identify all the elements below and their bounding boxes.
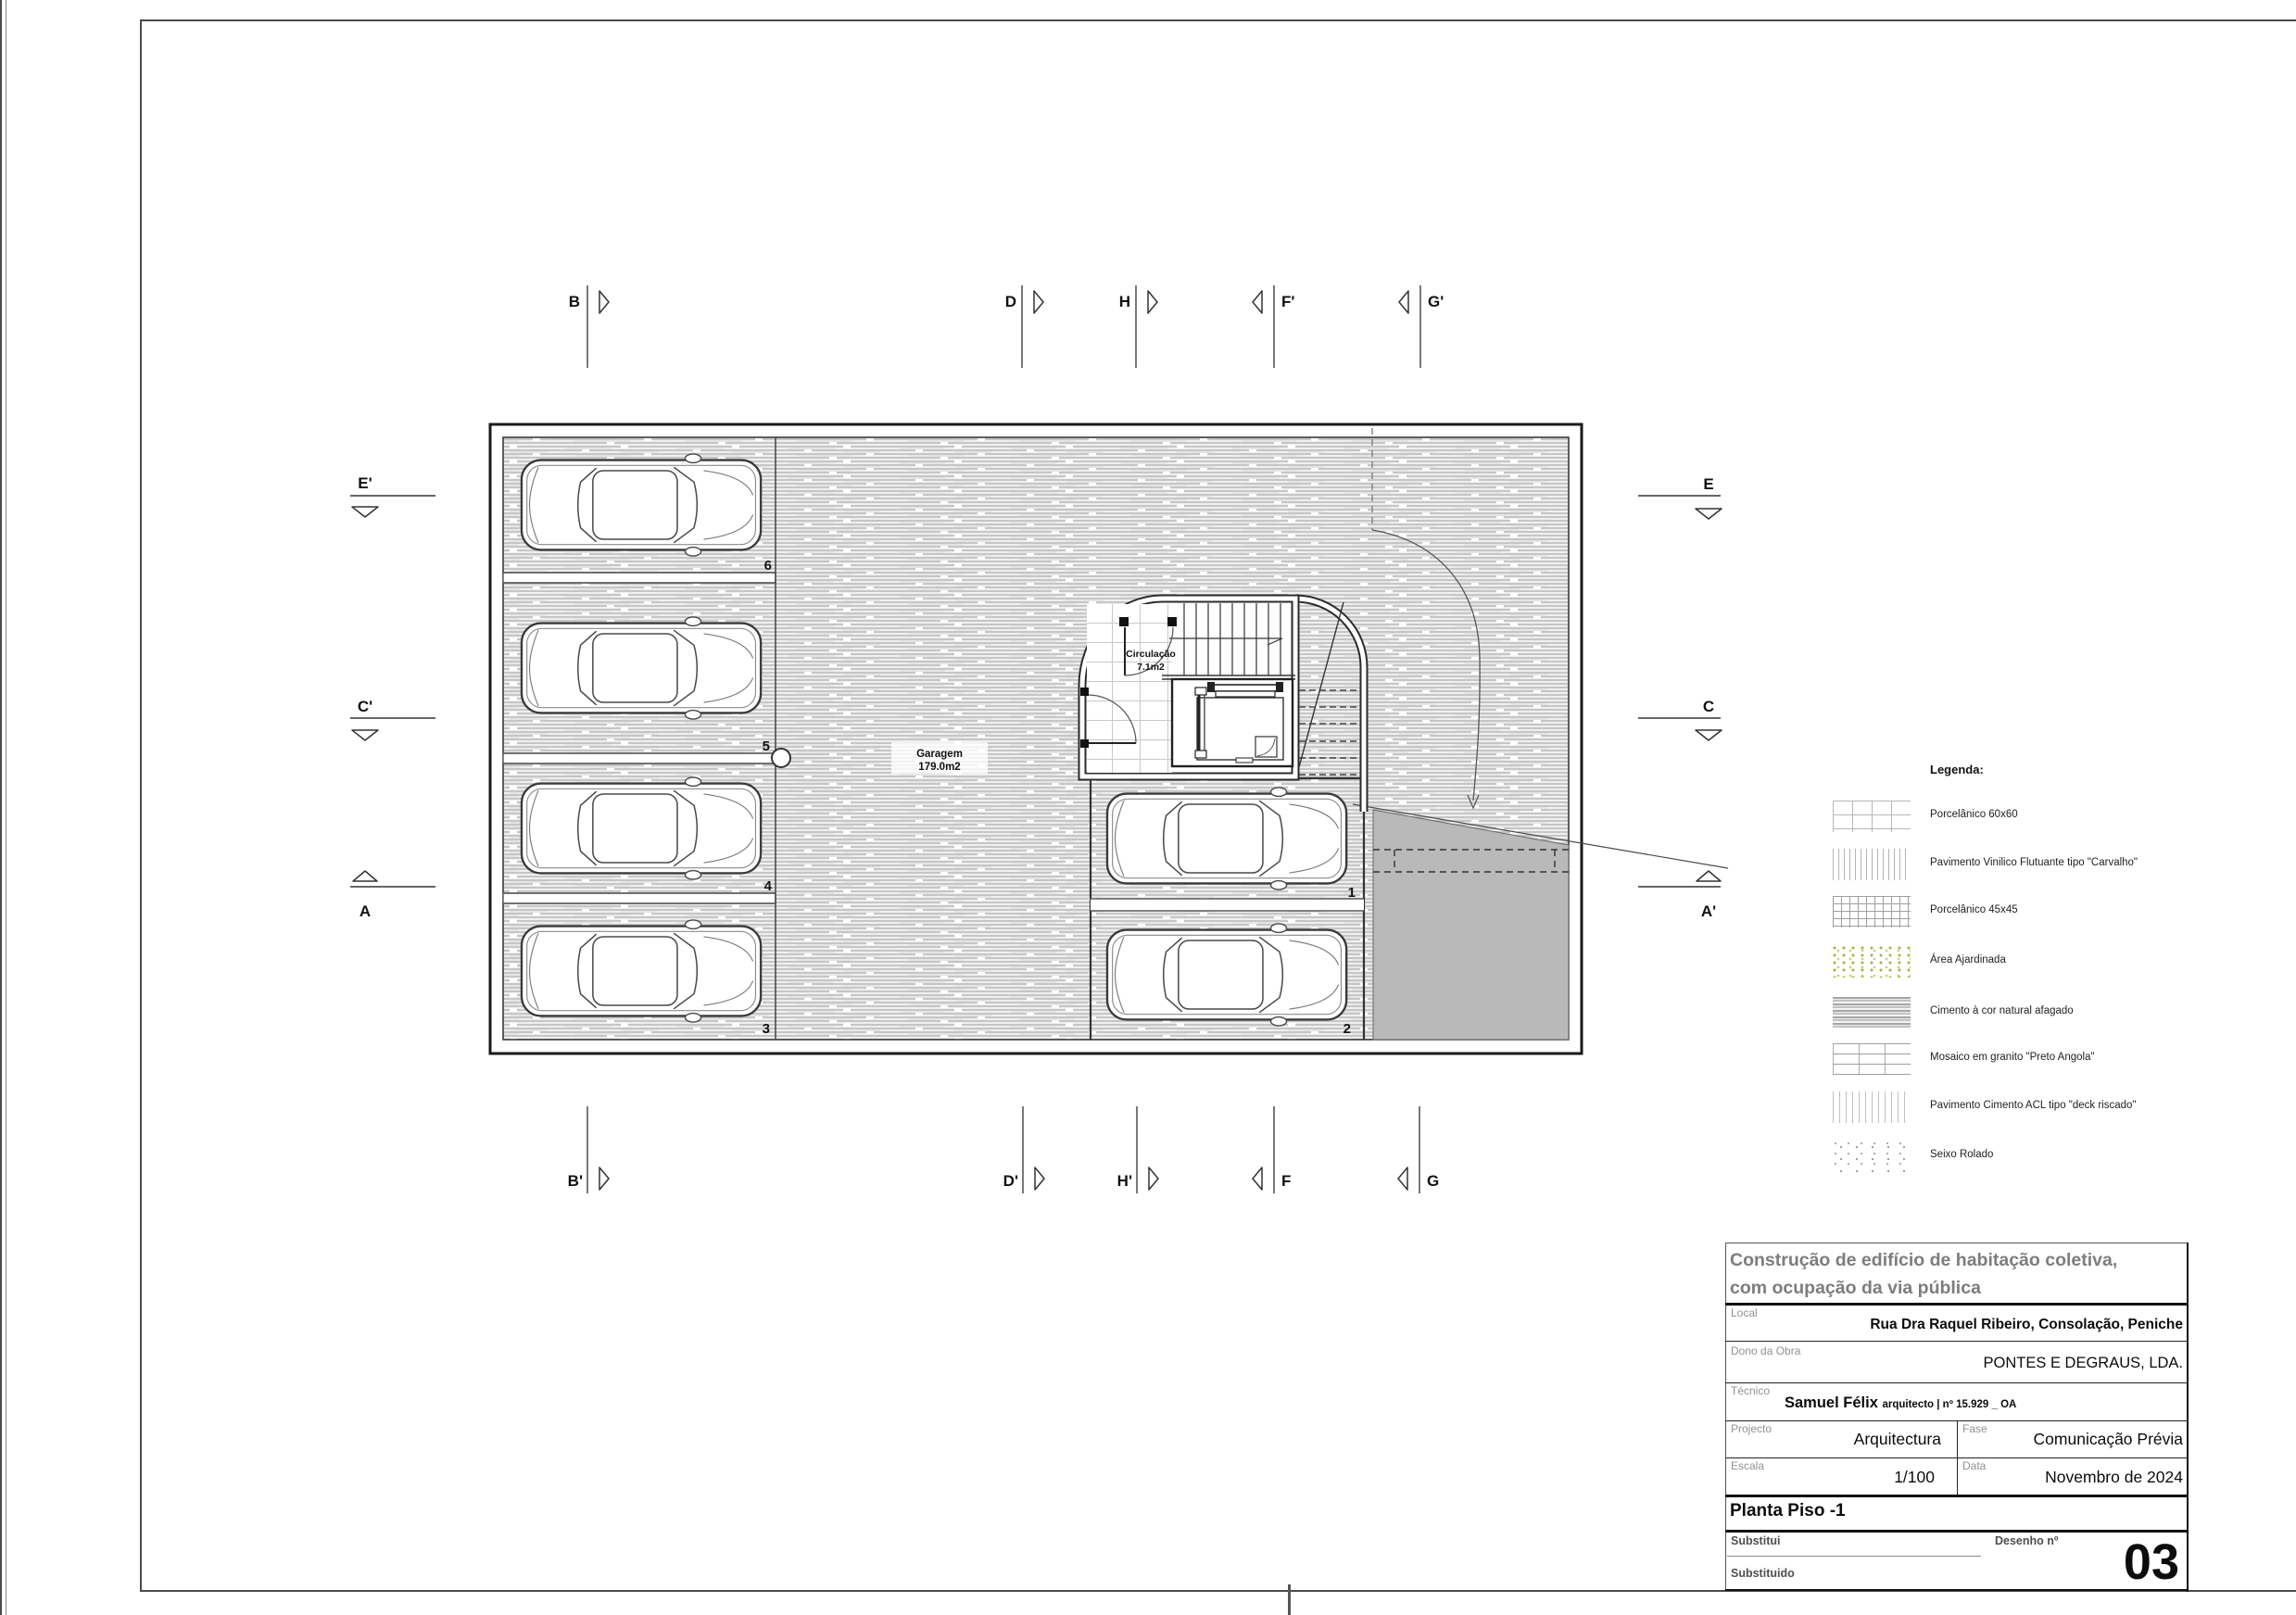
legend-title: Legenda: <box>1930 763 1984 776</box>
section-markers-bottom: B' D' H' F G <box>568 1106 1440 1193</box>
owner-label: Dono da Obra <box>1731 1344 1800 1357</box>
pebble-swatch-icon <box>1833 1141 1911 1172</box>
section-markers-right: E C A' <box>1638 475 1722 920</box>
section-label-G-prime: G' <box>1428 293 1444 310</box>
porcelanico-60-swatch-icon <box>1833 801 1911 832</box>
project-value: Arquitectura <box>1725 1430 1941 1449</box>
stall-number-1: 1 <box>1348 885 1356 901</box>
legend: Legenda: Porcelânico 60x60 Pavimento Vin… <box>1830 755 2256 1200</box>
porcelanico-45-swatch-icon <box>1833 896 1911 927</box>
legend-item: Mosaico em granito "Preto Angola" <box>1830 1043 2256 1075</box>
car-stall-3 <box>522 920 761 1022</box>
section-arrow-icon <box>1696 509 1722 881</box>
circulation-area: 7.1m2 <box>1137 662 1165 673</box>
garden-area-swatch-icon <box>1833 946 1911 978</box>
section-label-C: C <box>1703 698 1714 715</box>
technician-label: Técnico <box>1731 1384 1770 1397</box>
car-stall-6 <box>522 454 761 556</box>
legend-item: Área Ajardinada <box>1830 946 2256 978</box>
stall-number-6: 6 <box>764 558 772 574</box>
stall-number-4: 4 <box>764 878 773 894</box>
garage-area: 179.0m2 <box>918 762 960 773</box>
garage-label: Garagem <box>916 749 963 760</box>
vinyl-floor-swatch-icon <box>1833 849 1911 880</box>
legend-item: Porcelânico 60x60 <box>1830 801 2256 832</box>
cement-floor-swatch-icon <box>1833 997 1911 1028</box>
drawing-number-label: Desenho nº <box>1995 1534 2058 1547</box>
circulation-tiles <box>1087 604 1172 773</box>
section-label-A: A <box>360 902 371 920</box>
legend-item: Seixo Rolado <box>1830 1141 2256 1172</box>
section-label-H: H <box>1119 293 1130 310</box>
section-label-D: D <box>1005 293 1016 310</box>
section-arrow-icon <box>352 507 378 881</box>
section-markers-left: E' C' A <box>350 474 435 920</box>
drawing-title: Planta Piso -1 <box>1730 1501 1846 1521</box>
substitutes-label: Substitui <box>1731 1534 1780 1547</box>
section-markers-top: B D H F' G' <box>569 285 1444 368</box>
phase-value: Comunicação Prévia <box>2034 1430 2183 1449</box>
section-label-F: F <box>1281 1172 1291 1190</box>
title-block: Construção de edifício de habitação cole… <box>1725 1243 2189 1592</box>
section-label-E: E <box>1703 475 1713 493</box>
project-title: Construção de edifício de habitação cole… <box>1730 1246 2117 1302</box>
section-label-D-prime: D' <box>1003 1172 1018 1190</box>
car-stall-1 <box>1107 788 1346 890</box>
section-label-E-prime: E' <box>358 474 372 492</box>
stall-number-3: 3 <box>763 1021 770 1037</box>
section-label-B: B <box>569 293 580 310</box>
legend-item: Cimento à cor natural afagado <box>1830 997 2256 1028</box>
section-label-G: G <box>1427 1172 1439 1190</box>
legend-item: Pavimento Vinilico Flutuante tipo "Carva… <box>1830 849 2256 880</box>
local-label: Local <box>1731 1306 1758 1319</box>
car-stall-2 <box>1107 924 1346 1026</box>
column-marker <box>772 749 790 767</box>
elevator <box>1172 679 1293 766</box>
granite-mosaic-swatch-icon <box>1833 1043 1911 1075</box>
scale-value: 1/100 <box>1725 1468 1935 1487</box>
car-stall-4 <box>522 777 761 879</box>
acl-deck-swatch-icon <box>1833 1091 1911 1123</box>
circulation-label: Circulação <box>1126 649 1176 660</box>
local-value: Rua Dra Raquel Ribeiro, Consolação, Peni… <box>1870 1317 2183 1333</box>
phase-label: Fase <box>1962 1422 1987 1435</box>
legend-item: Porcelânico 45x45 <box>1830 896 2256 927</box>
technician-value: Samuel Félix arquitecto | nº 15.929 _ OA <box>1785 1394 2016 1412</box>
stall-number-5: 5 <box>763 738 770 754</box>
drawing-sheet: Circulação 7.1m2 Garagem 179.0m2 6 5 4 3… <box>0 0 2296 1615</box>
section-label-B-prime: B' <box>568 1172 583 1190</box>
substituted-label: Substituido <box>1731 1567 1795 1580</box>
stall-number-2: 2 <box>1344 1021 1351 1037</box>
section-label-A-prime: A' <box>1701 902 1716 920</box>
owner-value: PONTES E DEGRAUS, LDA. <box>1984 1355 2183 1372</box>
legend-item: Pavimento Cimento ACL tipo "deck riscado… <box>1830 1091 2256 1123</box>
drawing-number-value: 03 <box>2124 1539 2179 1585</box>
section-label-F-prime: F' <box>1281 293 1294 310</box>
section-label-C-prime: C' <box>358 698 372 715</box>
car-stall-5 <box>522 617 761 719</box>
date-value: Novembro de 2024 <box>2045 1468 2183 1487</box>
section-label-H-prime: H' <box>1117 1172 1132 1190</box>
garage-label-group: Garagem 179.0m2 <box>891 742 988 774</box>
date-label: Data <box>1962 1459 1986 1472</box>
